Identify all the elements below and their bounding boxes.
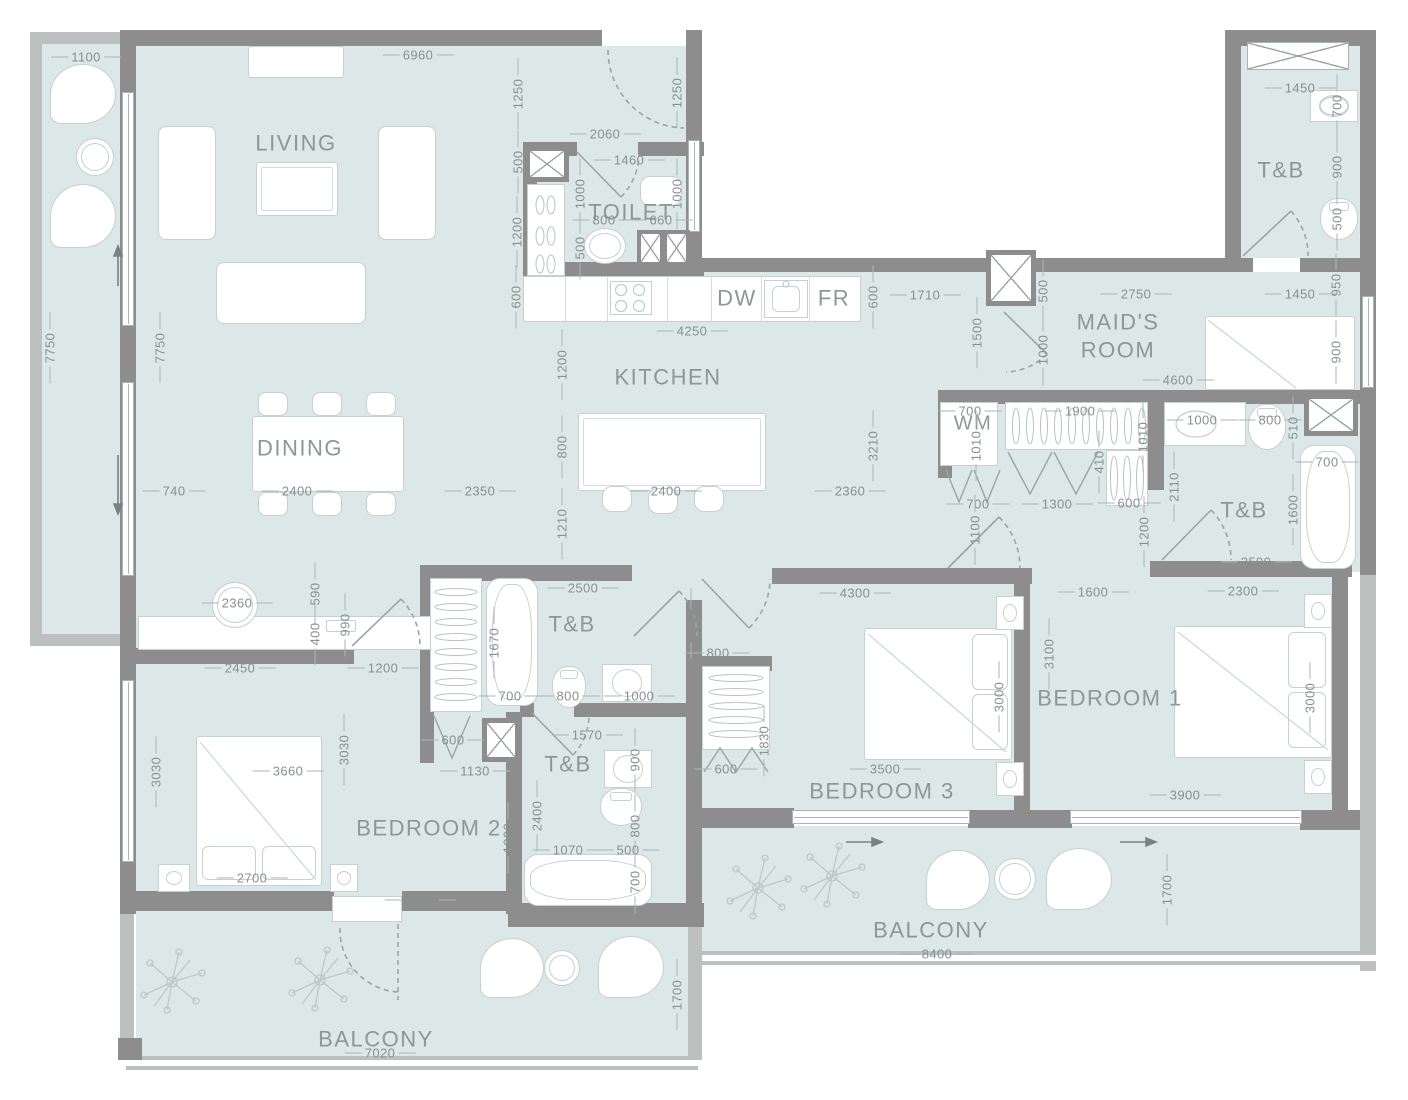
dimension-label: 600 (692, 762, 761, 777)
dimension-label: 1200 (510, 194, 525, 271)
window (1070, 810, 1302, 824)
dimension-label: 1100 (968, 492, 983, 568)
dimension-label: 2500 (545, 581, 622, 596)
window (1362, 296, 1374, 388)
dimension-label: 700 (1293, 455, 1362, 470)
wall-segment (1332, 568, 1348, 820)
dimension-label: 3100 (1042, 616, 1057, 693)
shaft-icon (525, 146, 569, 182)
side-table-icon (76, 138, 114, 176)
dimension-label: 950 (1329, 251, 1344, 320)
room-label-dw: DW (717, 284, 757, 312)
dimension-label: 500 (511, 128, 526, 197)
dimension-label: 900 (1329, 318, 1344, 387)
dimension-label: 1450 (1262, 287, 1339, 302)
floor-plan-canvas: LIVINGTOILETKITCHENDININGMAID'S ROOMT&BT… (0, 0, 1408, 1100)
dining-chair-icon (312, 392, 342, 416)
armchair-icon (480, 938, 544, 998)
room-label-bedroom-2: BEDROOM 2 (356, 814, 502, 842)
dining-chair-icon (258, 392, 288, 416)
dimension-label: 3030 (149, 734, 164, 811)
dimension-label: 2110 (1167, 449, 1182, 525)
armchair-icon (1046, 848, 1112, 910)
dimension-label: 1710 (887, 288, 964, 303)
wall-segment (700, 808, 794, 828)
wall-segment (30, 32, 42, 646)
dimension-label: 2400 (259, 484, 336, 499)
shaft-icon (1304, 394, 1358, 436)
window (792, 810, 970, 824)
dimension-label: 1700 (670, 957, 685, 1034)
dimension-label: 3210 (866, 408, 881, 485)
dimension-label: 2750 (1098, 287, 1175, 302)
dimension-label: 7750 (153, 310, 168, 387)
nightstand-icon (996, 596, 1024, 630)
dimension-label: 1450 (1262, 81, 1339, 96)
dimension-label: 4600 (1140, 373, 1217, 388)
dimension-label: 1250 (511, 56, 526, 133)
desk-icon (138, 616, 432, 650)
wall-segment (968, 810, 1072, 828)
dimension-label: 1200 (345, 661, 422, 676)
stove-icon (610, 281, 652, 315)
dimension-label: 1300 (1019, 497, 1096, 512)
dimension-label: 660 (627, 213, 696, 228)
counter-divider (667, 277, 668, 321)
window (122, 382, 134, 576)
shoe-cabinet-icon (527, 184, 565, 276)
dimension-label: 700 (1330, 72, 1345, 141)
sofa-icon (216, 262, 366, 324)
dimension-label: 500 (573, 214, 588, 283)
dimension-label: 900 (628, 726, 643, 795)
room-label-maid-s-room: MAID'S ROOM (1063, 309, 1173, 364)
side-table-icon (994, 858, 1036, 900)
wall-segment (772, 568, 1032, 584)
dimension-label: 2060 (567, 127, 644, 142)
dimension-label: 1210 (555, 486, 570, 563)
dimension-label: 2360 (199, 596, 276, 611)
wall-segment (702, 258, 1225, 272)
room-label-kitchen: KITCHEN (614, 363, 721, 391)
armchair-icon (50, 64, 116, 124)
room-label-t-b: T&B (548, 610, 595, 638)
dimension-label: 1830 (757, 703, 772, 780)
dimension-label: 6960 (380, 48, 457, 63)
dimension-label: 3000 (1303, 660, 1318, 737)
wardrobe-icon (430, 578, 482, 712)
dimension-label: 3660 (250, 764, 327, 779)
dining-chair-icon (366, 392, 396, 416)
wall-segment (1300, 810, 1360, 830)
dimension-label: 1570 (549, 728, 626, 743)
dimension-label: 700 (628, 848, 643, 917)
sofa-icon (378, 126, 436, 240)
dimension-label: 1460 (591, 153, 668, 168)
room-label-t-b: T&B (544, 750, 591, 778)
dimension-label: 7020 (342, 1046, 419, 1061)
dimension-label: 1670 (487, 605, 502, 682)
shaft-icon (663, 230, 690, 266)
wall-segment (120, 891, 334, 911)
armchair-icon (50, 184, 116, 248)
dimension-label: 1010 (1136, 399, 1151, 476)
dining-chair-icon (366, 492, 396, 516)
balcony-railing (702, 951, 1376, 965)
dimension-label: 2400 (628, 484, 705, 499)
dimension-label: 2300 (1205, 584, 1282, 599)
sink-icon (584, 228, 626, 264)
window (122, 92, 134, 326)
dimension-label: 990 (338, 591, 353, 660)
armchair-icon (598, 936, 664, 998)
tv-console-icon (248, 46, 344, 78)
shaft-icon (637, 230, 664, 266)
dimension-label: 7750 (43, 310, 58, 387)
nightstand-icon (1304, 760, 1332, 794)
dimension-label: 410 (1092, 428, 1107, 497)
dimension-label: 3500 (847, 762, 924, 777)
dimension-label: 600 (419, 733, 488, 748)
shaft-icon (482, 718, 520, 762)
dimension-label: 2500 (1218, 555, 1295, 570)
wall-segment (30, 634, 132, 646)
dimension-label: 1600 (1055, 585, 1132, 600)
wall-segment (508, 903, 704, 927)
dimension-label: 1200 (555, 327, 570, 404)
dimension-label: 800 (555, 413, 570, 482)
wall-segment (1241, 258, 1253, 272)
nightstand-icon (1304, 594, 1332, 628)
room-label-living: LIVING (255, 129, 336, 157)
room-label-t-b: T&B (1220, 496, 1267, 524)
room-label-dining: DINING (257, 434, 343, 462)
wall-segment (120, 30, 602, 46)
shaft-icon (1247, 42, 1349, 70)
wall-segment (118, 1038, 142, 1060)
dimension-label: 600 (866, 263, 881, 332)
dimension-label: 400 (308, 600, 323, 669)
nightstand-icon (996, 762, 1024, 796)
dimension-label: 510 (1286, 394, 1301, 463)
nightstand-icon (330, 864, 358, 892)
dimension-label: 1100 (48, 50, 124, 65)
kitchen-counter (523, 276, 861, 322)
dimension-label: 1250 (670, 55, 685, 132)
room-label-bedroom-3: BEDROOM 3 (809, 777, 955, 805)
counter-divider (711, 277, 712, 321)
wall-segment (1225, 30, 1241, 272)
dimension-label: 1010 (969, 408, 984, 485)
dimension-label: 4300 (817, 586, 894, 601)
dimension-label: 1900 (1042, 404, 1119, 419)
side-table-icon (544, 950, 580, 986)
wall-segment (574, 703, 704, 717)
dimension-label: 2350 (442, 484, 519, 499)
dimension-label: 4250 (654, 324, 731, 339)
dimension-label: 600 (1095, 496, 1164, 511)
kitchen-island-icon (578, 413, 766, 491)
sink-basin-icon (772, 286, 800, 312)
dimension-label: 8400 (899, 947, 976, 962)
wall-segment (1360, 575, 1376, 971)
dimension-label: 2450 (202, 661, 279, 676)
dimension-label: 1200 (1137, 494, 1152, 571)
wall-segment (688, 926, 702, 1060)
dimension-label: 3030 (337, 712, 352, 789)
dimension-label: 600 (509, 263, 524, 332)
counter-divider (565, 277, 566, 321)
dimension-label: 500 (1330, 185, 1345, 254)
counter-divider (761, 277, 762, 321)
dimension-label: 3900 (1147, 788, 1224, 803)
dimension-label: 1130 (437, 764, 513, 779)
counter-divider (607, 277, 608, 321)
armchair-icon (926, 850, 990, 910)
dimension-label: 1700 (1160, 852, 1175, 929)
counter-divider (809, 277, 810, 321)
dimension-label: 2700 (214, 871, 291, 886)
coffee-table-icon (256, 162, 338, 216)
sofa-icon (158, 126, 216, 240)
dimension-label: 740 (140, 484, 209, 499)
dimension-label: 1900 (501, 800, 516, 877)
dimension-label: 1600 (1286, 472, 1301, 549)
dimension-label: 800 (534, 689, 603, 704)
room-label-balcony: BALCONY (873, 916, 989, 944)
dimension-label: 2080 (382, 893, 459, 908)
window (122, 680, 134, 862)
dimension-label: 1500 (970, 295, 985, 372)
wall-segment (30, 32, 122, 44)
room-label-bedroom-1: BEDROOM 1 (1037, 684, 1183, 712)
dimension-label: 800 (684, 646, 753, 661)
shaft-icon (986, 250, 1036, 306)
room-label-fr: FR (818, 284, 850, 312)
dimension-label: 1000 (1036, 312, 1051, 389)
dimension-label: 2360 (812, 484, 889, 499)
dimension-label: 1000 (1164, 413, 1241, 428)
room-label-t-b: T&B (1257, 156, 1304, 184)
dimension-label: 1000 (601, 689, 678, 704)
nightstand-icon (158, 864, 190, 892)
dimension-label: 3000 (992, 659, 1007, 736)
